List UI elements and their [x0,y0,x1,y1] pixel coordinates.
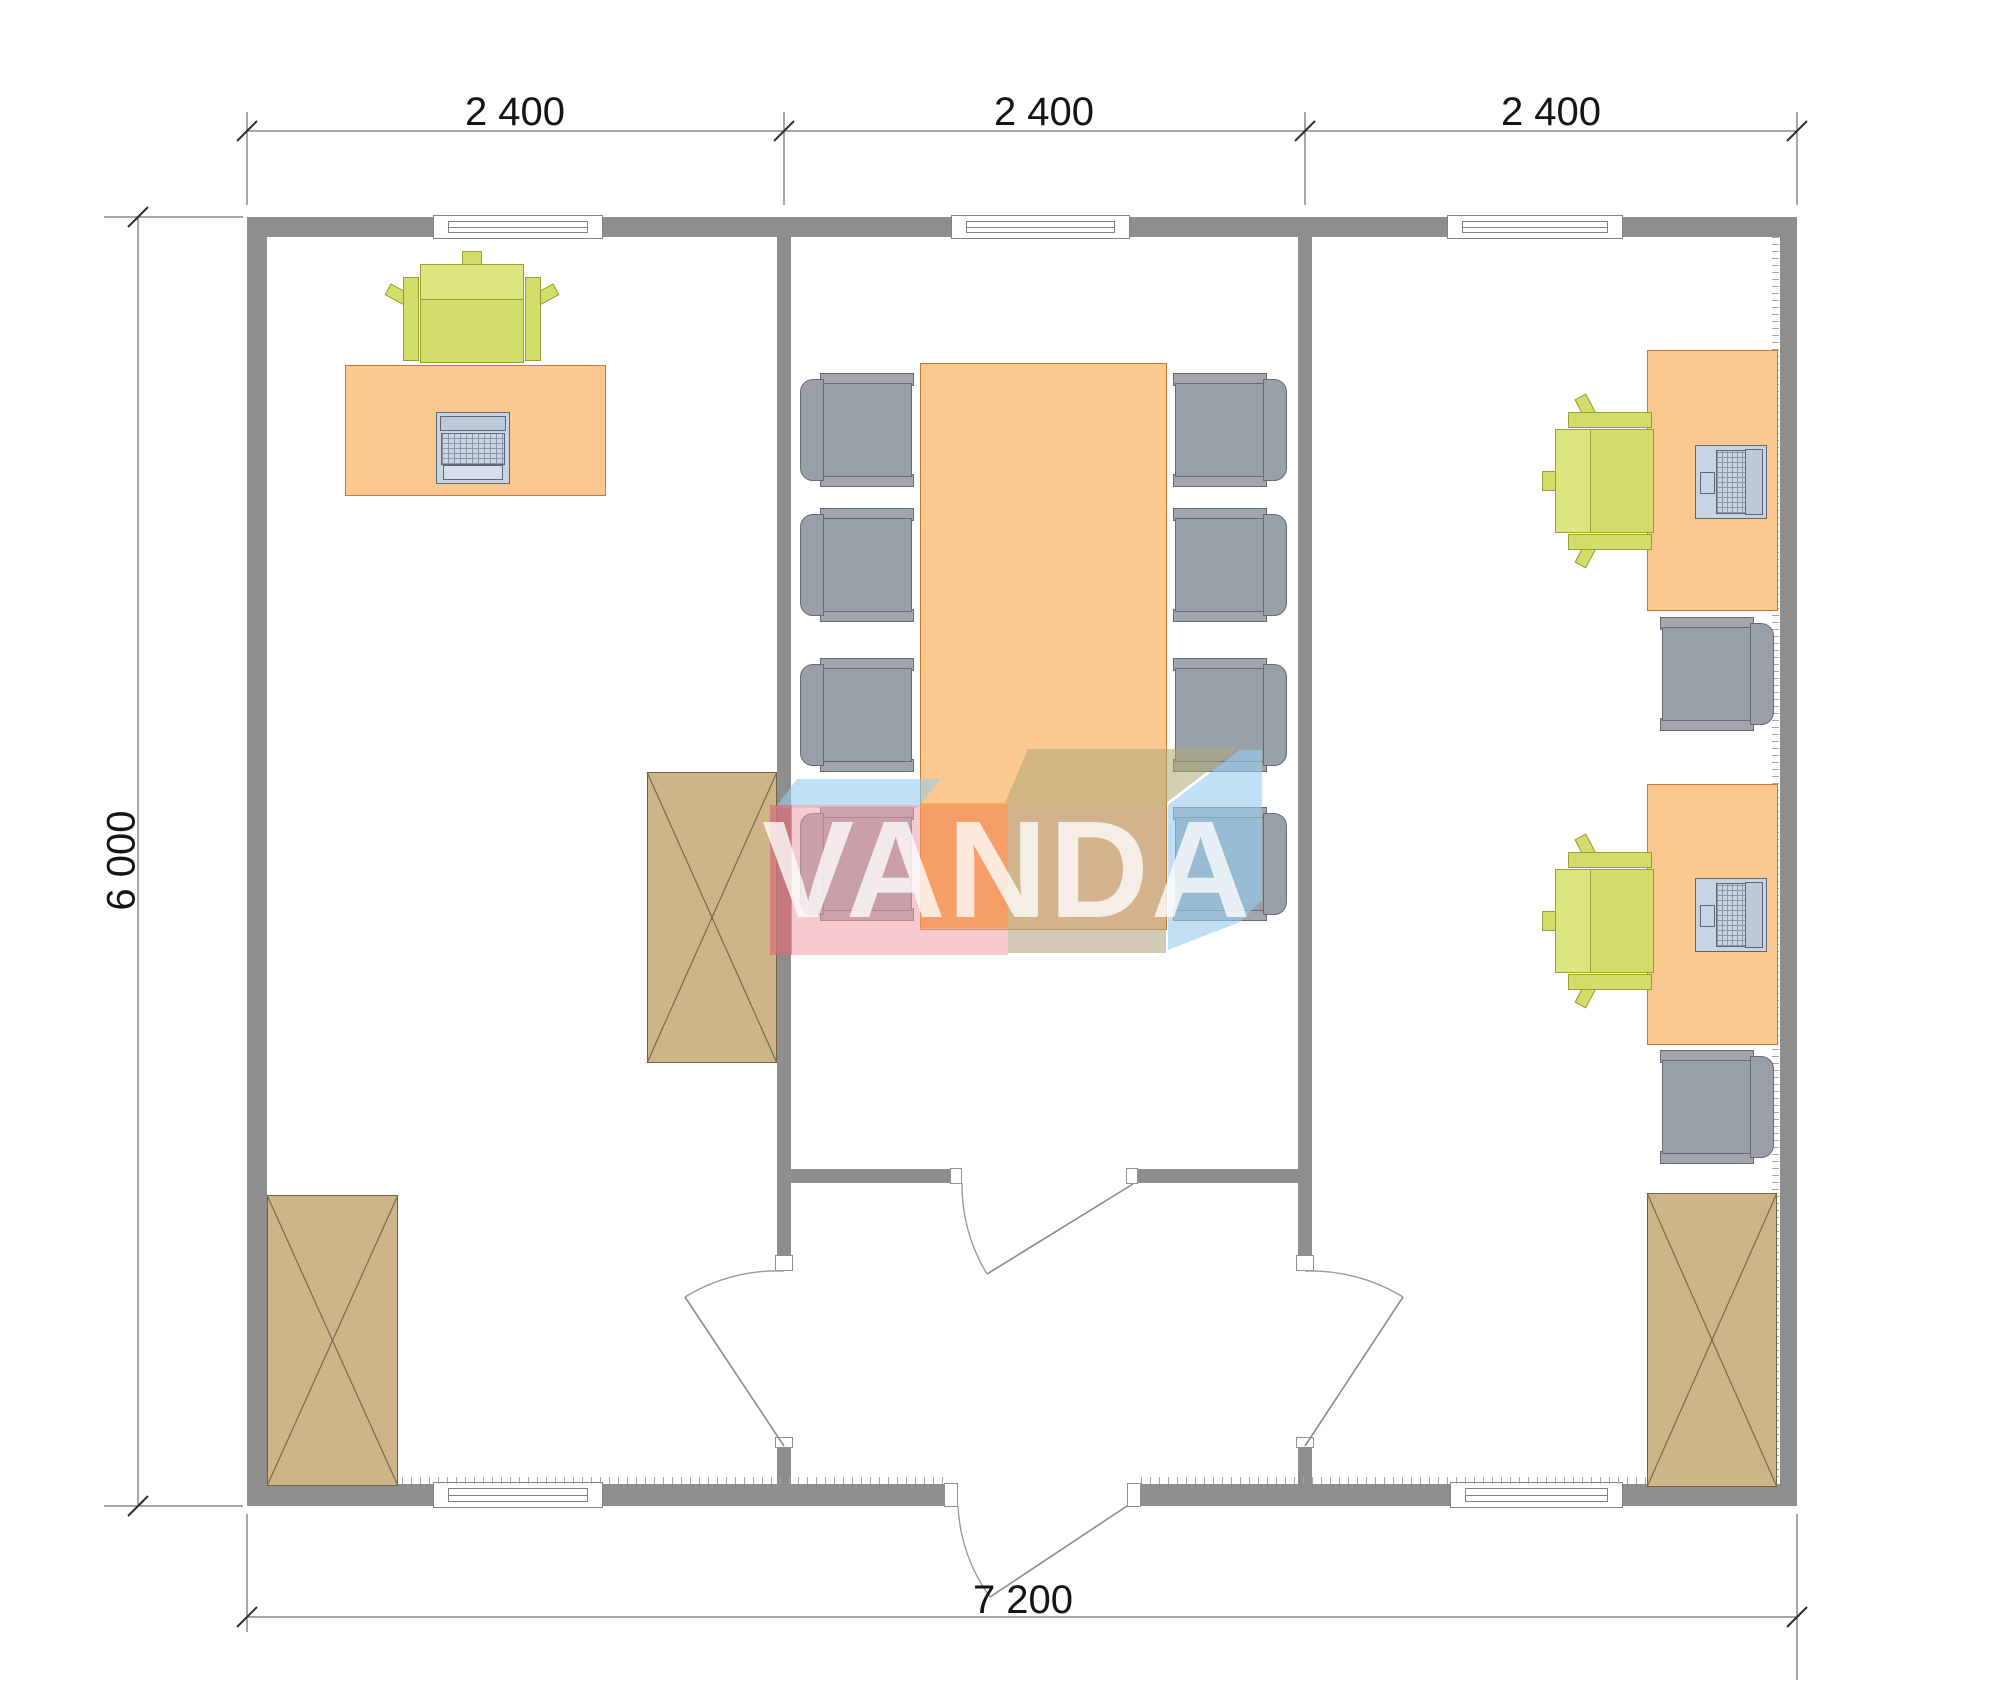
floor-plan-canvas: VANDA 2 400 2 400 2 400 6 000 7 200 [0,0,2000,1704]
watermark-text: VANDA [762,788,1248,952]
dimension-label-top-right: 2 400 [1451,90,1651,135]
dimension-label-top-left: 2 400 [415,90,615,135]
dimension-label-top-middle: 2 400 [944,90,1144,135]
dimension-label-bottom: 7 200 [923,1578,1123,1623]
dimension-label-left: 6 000 [100,781,145,941]
